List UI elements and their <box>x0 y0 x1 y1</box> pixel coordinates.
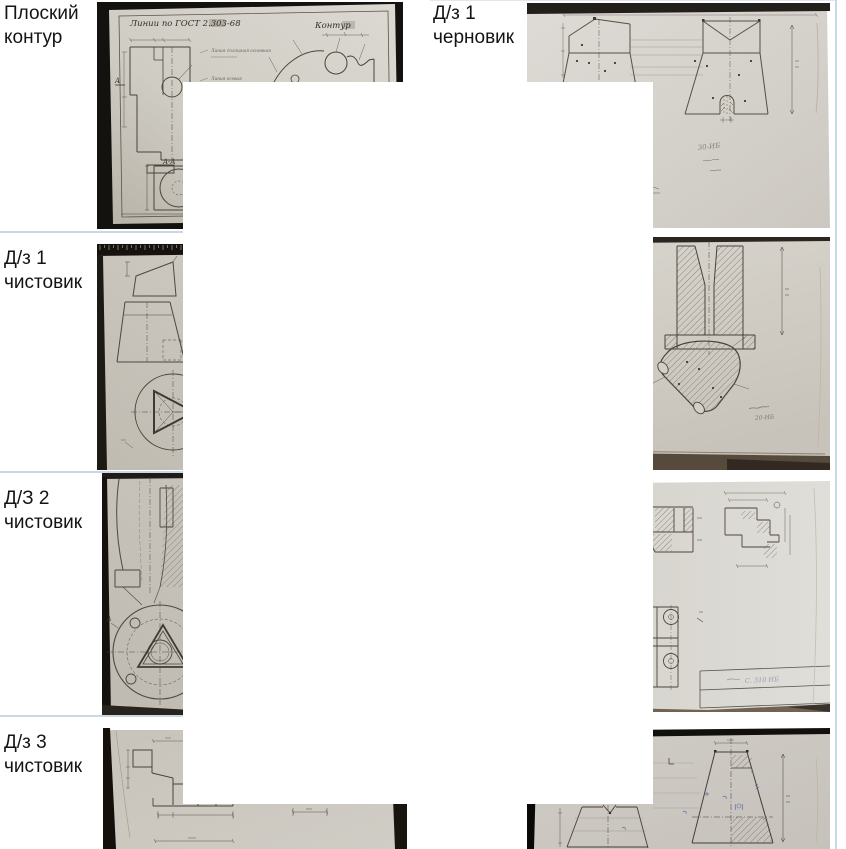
note1-text: Линия сплошная основная <box>210 48 271 53</box>
section-label-text: A-A <box>162 158 175 166</box>
row4-left-label: Д/з 3 чистовик <box>4 731 98 779</box>
kontur-label-text: Контур <box>314 21 351 31</box>
row3-left-label: Д/З 2 чистовик <box>4 487 98 535</box>
top-border <box>430 0 835 1</box>
white-overlay-box <box>183 82 653 804</box>
right-column-border <box>835 0 837 849</box>
hw-clean1-text: 20-ИБ <box>754 414 775 422</box>
note2-text: Линия осевая <box>210 76 242 81</box>
row1-left-label: Плоский контур <box>4 2 98 50</box>
row2-left-label: Д/з 1 чистовик <box>4 247 98 295</box>
notebook-page: Плоский контур Д/з 1 черновик Д/з 1 чист… <box>0 0 846 849</box>
gost-title-text: Линии по ГОСТ 2.303-68 <box>129 19 241 29</box>
view-arrow-a2: A <box>106 616 112 623</box>
photo-right-edge <box>393 798 407 849</box>
view-arrow-a: A <box>114 77 120 85</box>
row1-right-label: Д/з 1 черновик <box>433 2 527 50</box>
